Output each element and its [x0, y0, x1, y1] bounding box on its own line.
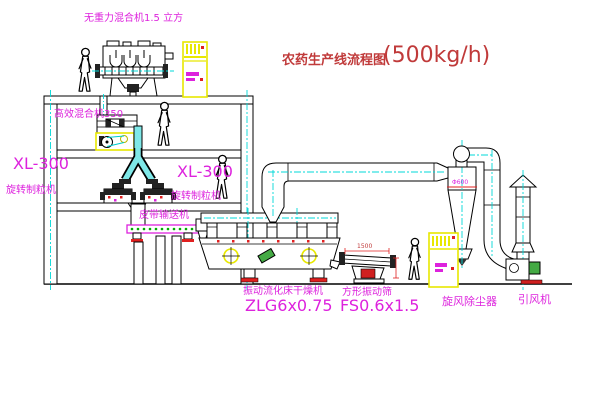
dryer-model-label: ZLG6x0.75 — [245, 298, 333, 314]
induced-draft-fan — [506, 259, 542, 284]
cyclone-label: 旋风除尘器 — [442, 296, 497, 307]
granulator-right-name: 旋转制粒机 — [171, 192, 221, 202]
diagram-title: 农药生产线流程图 — [282, 54, 386, 67]
granulator-left-model: XL-300 — [13, 156, 69, 172]
worker-figure — [409, 238, 420, 279]
vibrating-screen-machine — [339, 248, 399, 283]
zero-gravity-mixer-label: 无重力混合机1.5 立方 — [84, 14, 183, 24]
worker-figure — [158, 102, 170, 145]
support-columns — [134, 236, 181, 284]
control-cabinet-ground — [429, 233, 458, 287]
screen-length-dim: 1500 — [357, 244, 372, 250]
fan-label: 引风机 — [518, 294, 551, 305]
belt-conveyor-label: 皮带输送机 — [139, 211, 189, 221]
control-cabinet-roof — [183, 42, 207, 97]
diagram-title-capacity: (500kg/h) — [383, 45, 490, 67]
granulator-right-model: XL-300 — [177, 164, 233, 180]
granulator-left-name: 旋转制粒机 — [6, 186, 56, 196]
screen-model-label: FS0.6x1.5 — [340, 298, 419, 314]
zero-gravity-mixer — [92, 41, 174, 96]
worker-figure — [79, 48, 91, 91]
granulator-left-machine — [100, 183, 136, 203]
high-efficiency-mixer-label: 高效混合机350 — [54, 110, 123, 120]
cyclone-diameter-dim: Φ600 — [452, 180, 468, 186]
diagram-canvas: 无重力混合机1.5 立方 农药生产线流程图 (500kg/h) 高效混合机350… — [0, 0, 600, 403]
